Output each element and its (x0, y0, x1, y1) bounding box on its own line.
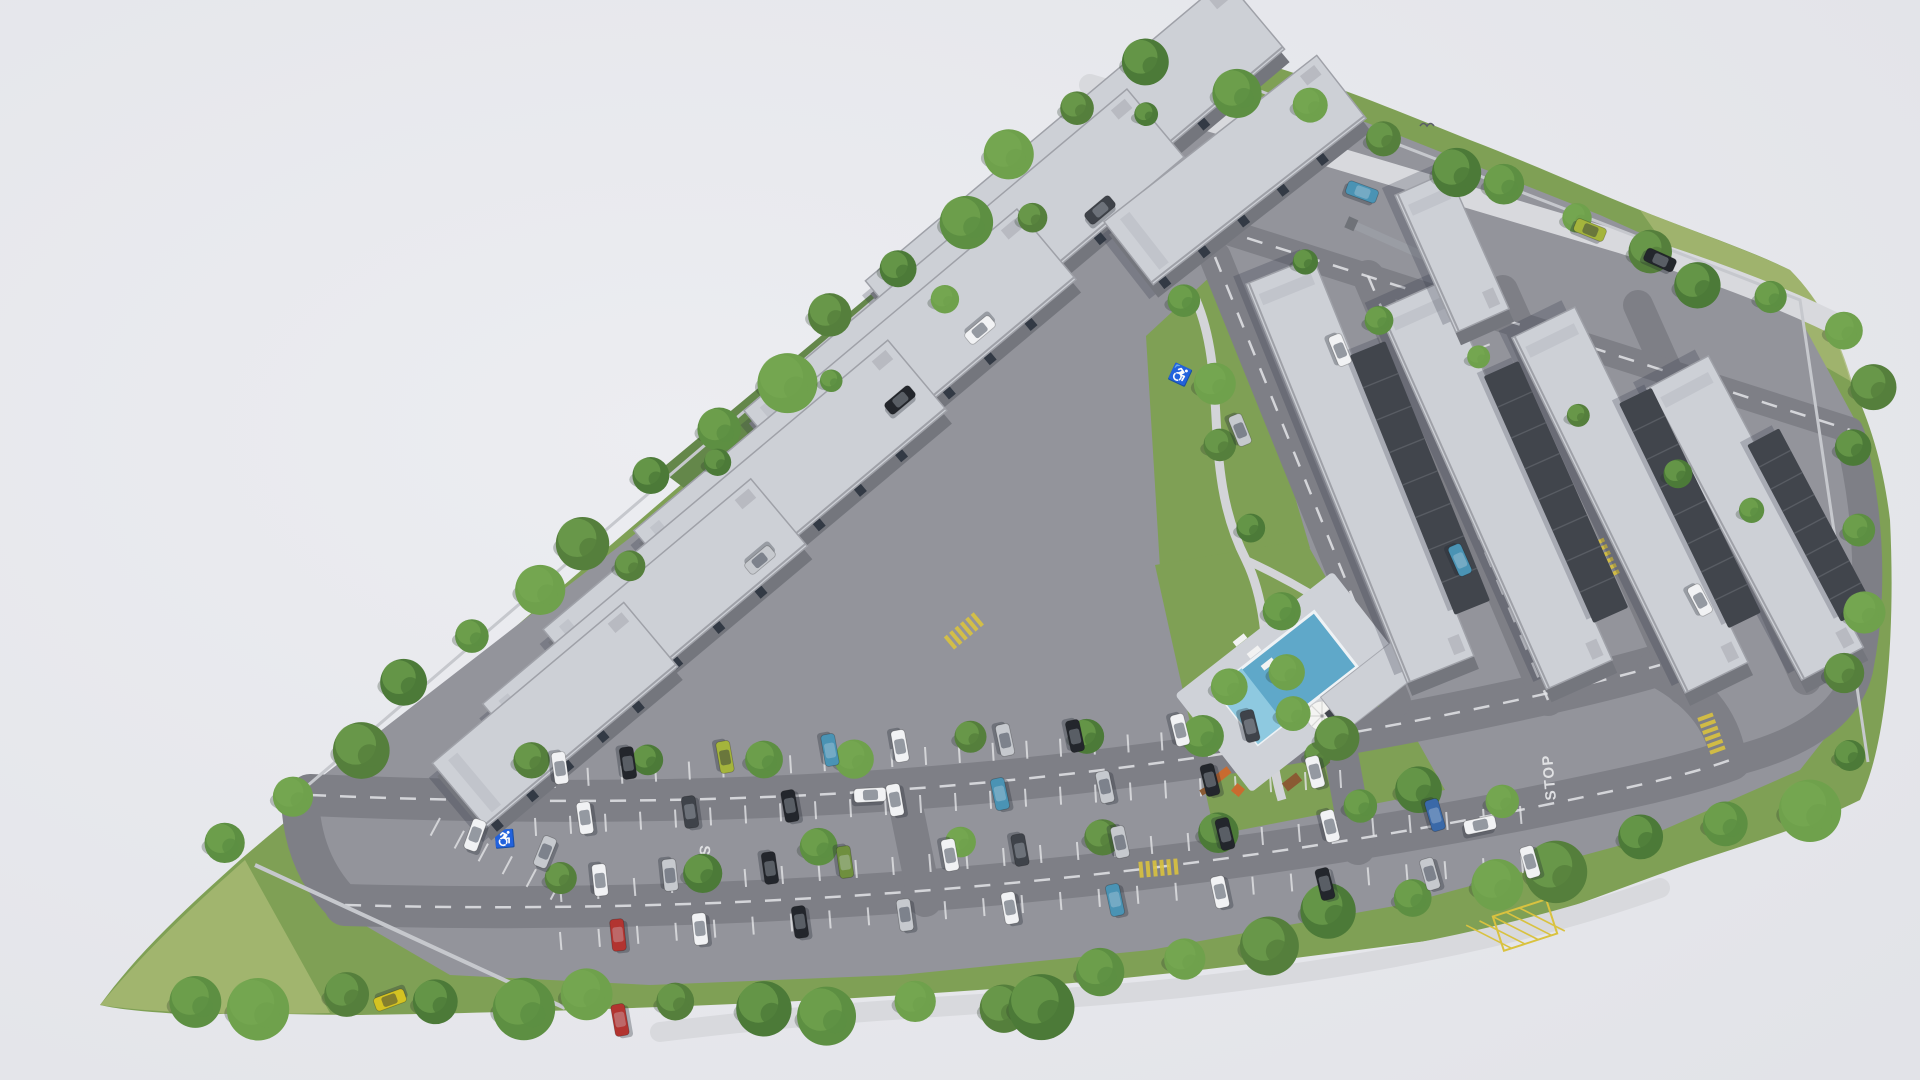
parked-car (658, 856, 679, 892)
stall-line (1025, 789, 1026, 807)
road-connector-mid-1 (905, 802, 925, 900)
stall-line (1128, 735, 1129, 753)
aerial-render-stage: STOP STOP ♿♿ (0, 0, 1920, 1080)
stall-line (1340, 770, 1341, 788)
parked-car (588, 861, 609, 897)
stall-line (588, 768, 589, 786)
stall-line (1060, 739, 1061, 757)
stall-line (605, 814, 606, 832)
stall-line (780, 803, 781, 821)
stall-line (993, 743, 994, 761)
parked-car (851, 787, 886, 806)
parked-car (691, 912, 712, 948)
stall-line (815, 801, 816, 819)
stall-line (1161, 732, 1162, 750)
stall-line (1165, 780, 1166, 798)
stall-line (745, 805, 746, 823)
stall-line (640, 812, 641, 830)
site-plan-render: STOP STOP ♿♿ (0, 0, 1920, 1080)
stall-line (990, 791, 991, 809)
stall-line (1200, 778, 1201, 796)
stall-line (570, 816, 571, 834)
stall-line (790, 755, 791, 773)
stall-line (1026, 741, 1027, 759)
stall-line (535, 818, 536, 836)
stall-line (710, 808, 711, 826)
stall-line (689, 762, 690, 780)
stall-line (920, 795, 921, 813)
stall-line (1130, 783, 1131, 801)
stall-line (1305, 772, 1306, 790)
stall-line (955, 793, 956, 811)
stall-line (1060, 787, 1061, 805)
stall-line (850, 799, 851, 817)
parked-car (609, 918, 630, 954)
stall-line (675, 810, 676, 828)
stall-line (925, 747, 926, 765)
stall-line (1095, 785, 1096, 803)
